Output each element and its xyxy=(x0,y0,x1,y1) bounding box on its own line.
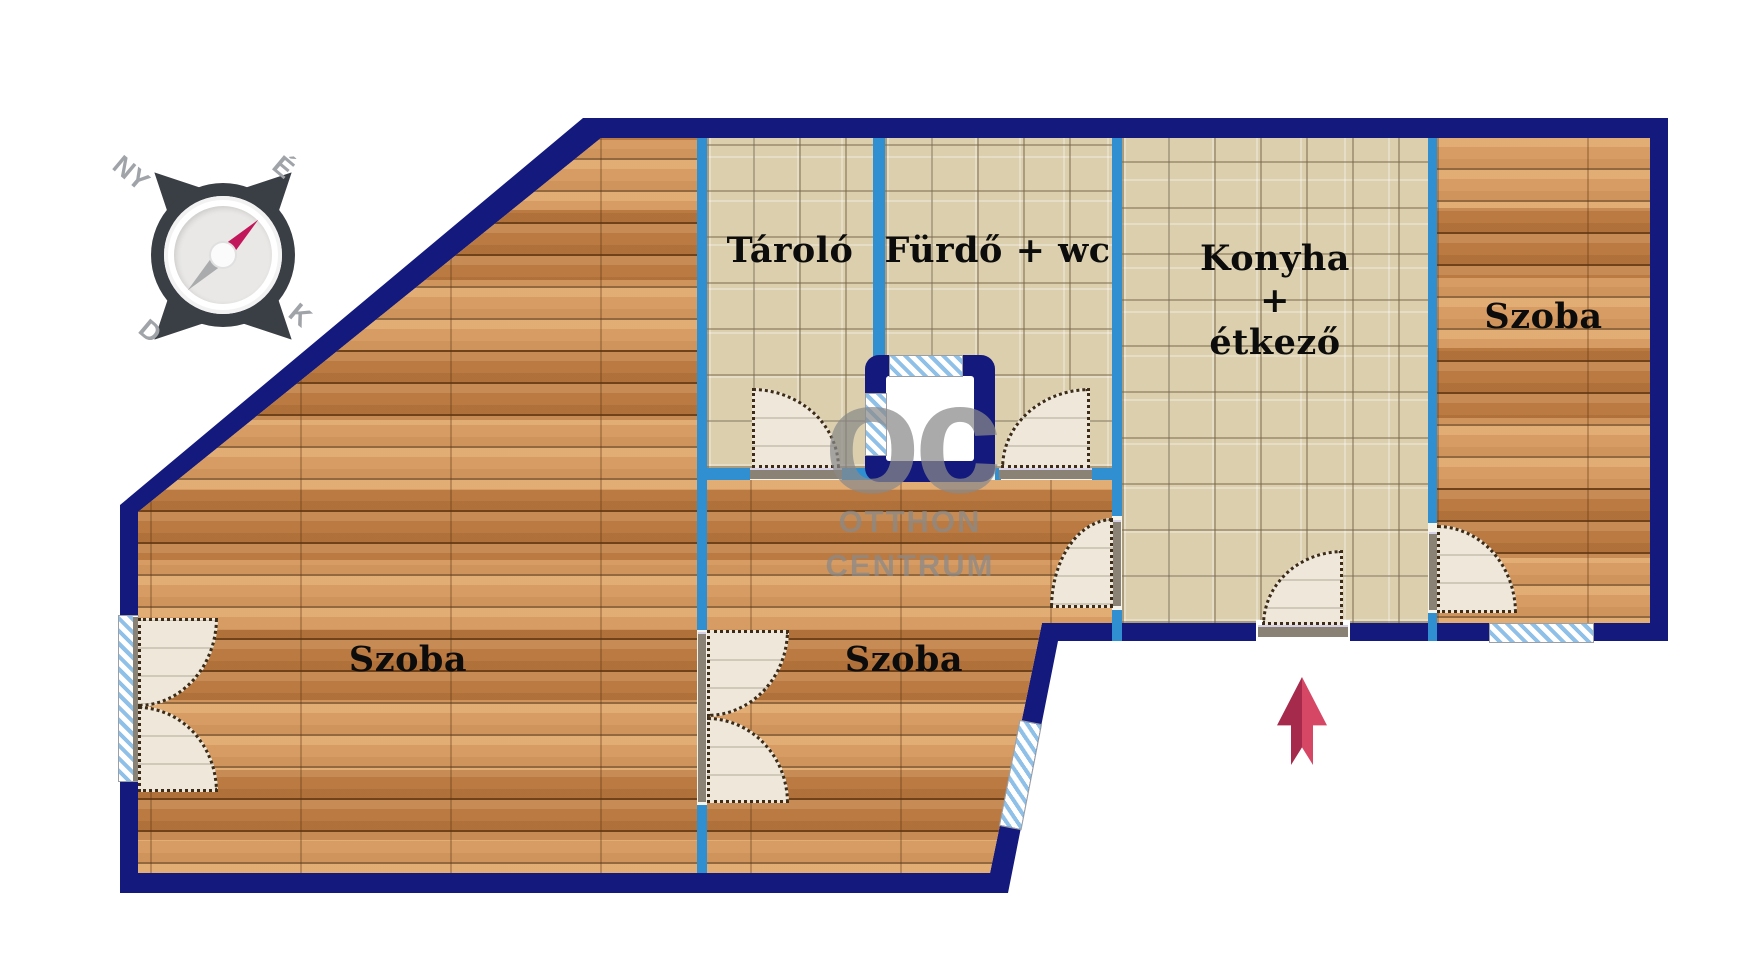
floor-konyha xyxy=(1122,138,1428,623)
double-door-threshold xyxy=(698,632,706,802)
label-konyha-line2: + xyxy=(1122,280,1428,322)
watermark-logo: oc xyxy=(760,378,1060,498)
wall-tarolo-bottom-a xyxy=(697,468,750,480)
label-tarolo: Tároló xyxy=(707,230,873,271)
wall-left-middle-upper xyxy=(697,138,707,630)
compass-label-nw: NY xyxy=(106,150,155,198)
label-szoba-middle: Szoba xyxy=(804,639,1004,680)
wall-furdo-konyha-upper xyxy=(1112,138,1122,516)
wall-furdo-bottom-b xyxy=(1092,468,1122,480)
window-bottom-wall xyxy=(1490,624,1593,642)
wall-left-middle-lower xyxy=(697,805,707,873)
watermark-line2: CENTRUM xyxy=(760,546,1060,586)
wall-konyha-szoba-lower xyxy=(1428,613,1437,641)
label-furdo: Fürdő + wc xyxy=(880,230,1115,271)
compass-pivot xyxy=(211,243,235,267)
compass-rose: NY É D K xyxy=(118,150,328,360)
wall-furdo-konyha-lower xyxy=(1112,610,1122,641)
entrance-arrow xyxy=(1277,677,1327,765)
label-konyha-line3: étkező xyxy=(1122,322,1428,364)
label-szoba-left: Szoba xyxy=(308,639,508,680)
szoba-right-threshold xyxy=(1429,532,1437,610)
label-konyha: Konyha + étkező xyxy=(1122,238,1428,364)
watermark-line1: OTTHON xyxy=(760,502,1060,542)
label-konyha-line1: Konyha xyxy=(1122,238,1428,280)
entrance-threshold xyxy=(1258,625,1348,637)
floor-plan-canvas: oc OTTHON CENTRUM Tároló Fürdő + wc Kony… xyxy=(0,0,1760,960)
szoba-konyha-threshold xyxy=(1112,520,1121,606)
watermark: oc OTTHON CENTRUM xyxy=(760,378,1060,586)
wall-konyha-szoba-upper xyxy=(1428,138,1437,523)
label-szoba-right: Szoba xyxy=(1437,296,1650,337)
